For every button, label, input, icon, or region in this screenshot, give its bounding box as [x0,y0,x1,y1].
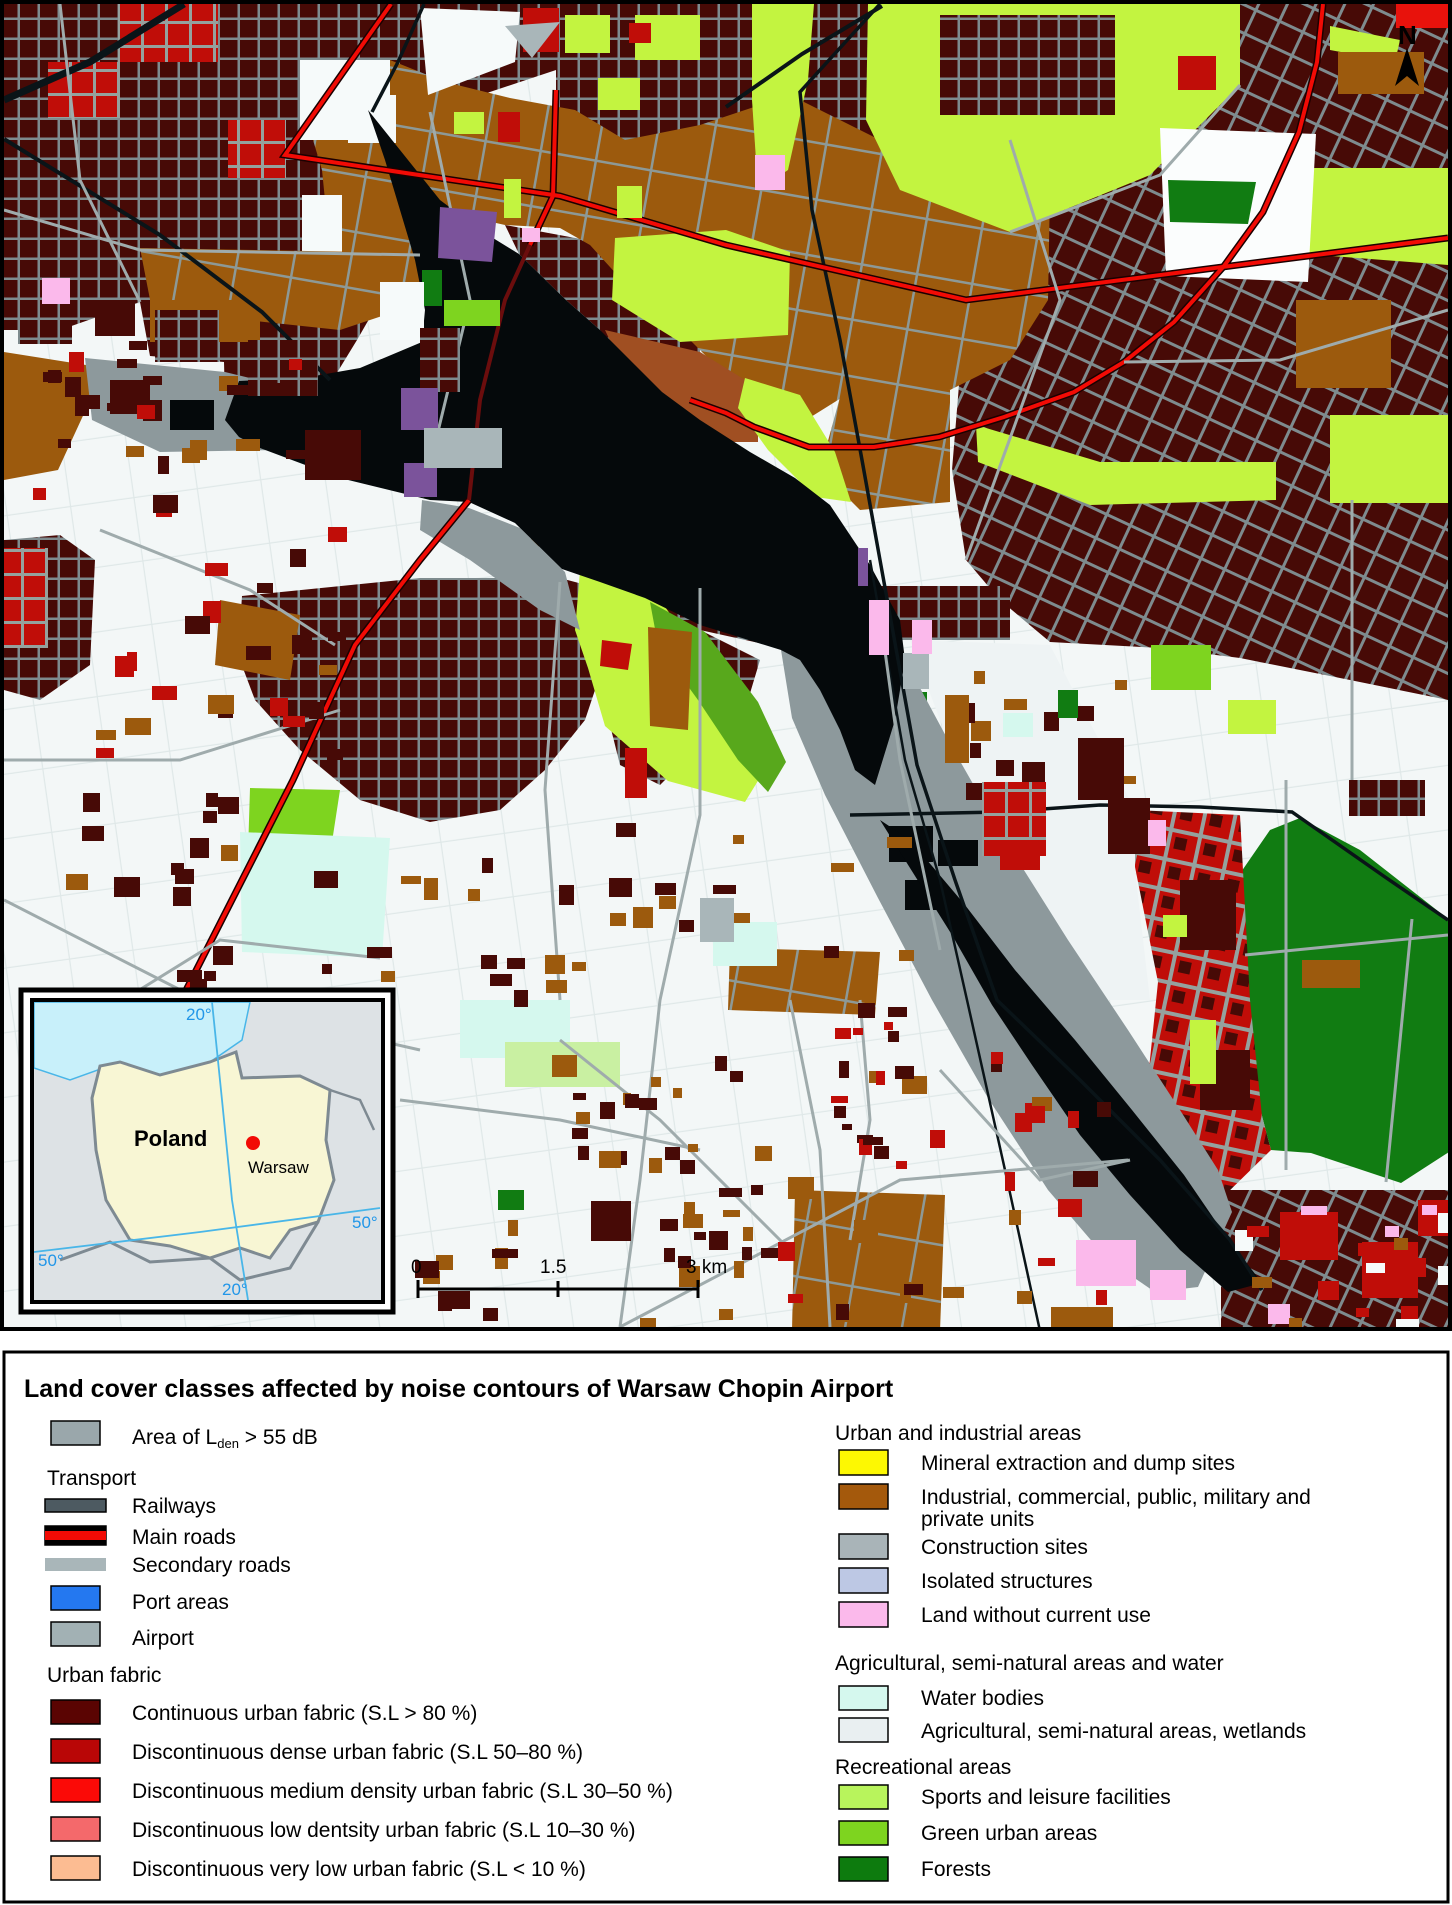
svg-text:Sports and leisure facilities: Sports and leisure facilities [921,1786,1171,1809]
svg-text:Discontinuous low dentsity urb: Discontinuous low dentsity urban fabric … [132,1819,636,1842]
svg-text:Poland: Poland [134,1126,207,1151]
svg-text:20°: 20° [186,1005,212,1024]
svg-text:Industrial, commercial, public: Industrial, commercial, public, military… [921,1486,1311,1509]
svg-text:Agricultural, semi-natural are: Agricultural, semi-natural areas and wat… [835,1652,1224,1675]
svg-text:Continuous urban fabric (S.L >: Continuous urban fabric (S.L > 80 %) [132,1702,477,1725]
svg-text:50°: 50° [38,1251,64,1270]
svg-text:Green urban areas: Green urban areas [921,1822,1097,1845]
svg-text:Land without current use: Land without current use [921,1604,1151,1627]
svg-text:Recreational areas: Recreational areas [835,1756,1011,1779]
svg-text:Land cover classes affected by: Land cover classes affected by noise con… [24,1375,894,1403]
svg-text:Mineral extraction and dump si: Mineral extraction and dump sites [921,1452,1235,1475]
svg-text:Water bodies: Water bodies [921,1687,1044,1710]
svg-text:3 km: 3 km [686,1257,727,1278]
svg-text:Transport: Transport [47,1467,136,1490]
svg-text:Urban fabric: Urban fabric [47,1664,161,1687]
svg-text:Urban and industrial areas: Urban and industrial areas [835,1422,1081,1445]
svg-text:Isolated structures: Isolated structures [921,1570,1093,1593]
svg-text:Agricultural, semi-natural are: Agricultural, semi-natural areas, wetlan… [921,1720,1306,1743]
svg-text:Discontinuous dense urban fabr: Discontinuous dense urban fabric (S.L 50… [132,1741,583,1764]
svg-text:Railways: Railways [132,1495,216,1518]
svg-text:Port areas: Port areas [132,1591,229,1614]
svg-text:private units: private units [921,1508,1034,1531]
svg-text:Warsaw: Warsaw [248,1158,309,1177]
svg-text:Construction sites: Construction sites [921,1536,1088,1559]
svg-text:N: N [1398,20,1417,50]
svg-text:Forests: Forests [921,1858,991,1881]
svg-text:Discontinuous very low urban f: Discontinuous very low urban fabric (S.L… [132,1858,586,1881]
svg-text:0: 0 [411,1257,422,1278]
svg-text:Main roads: Main roads [132,1526,236,1549]
svg-text:20°: 20° [222,1280,248,1299]
svg-text:Airport: Airport [132,1627,194,1650]
svg-text:Secondary roads: Secondary roads [132,1554,291,1577]
svg-text:50°: 50° [352,1213,378,1232]
svg-text:1.5: 1.5 [540,1257,566,1278]
svg-text:Discontinuous medium density u: Discontinuous medium density urban fabri… [132,1780,673,1803]
